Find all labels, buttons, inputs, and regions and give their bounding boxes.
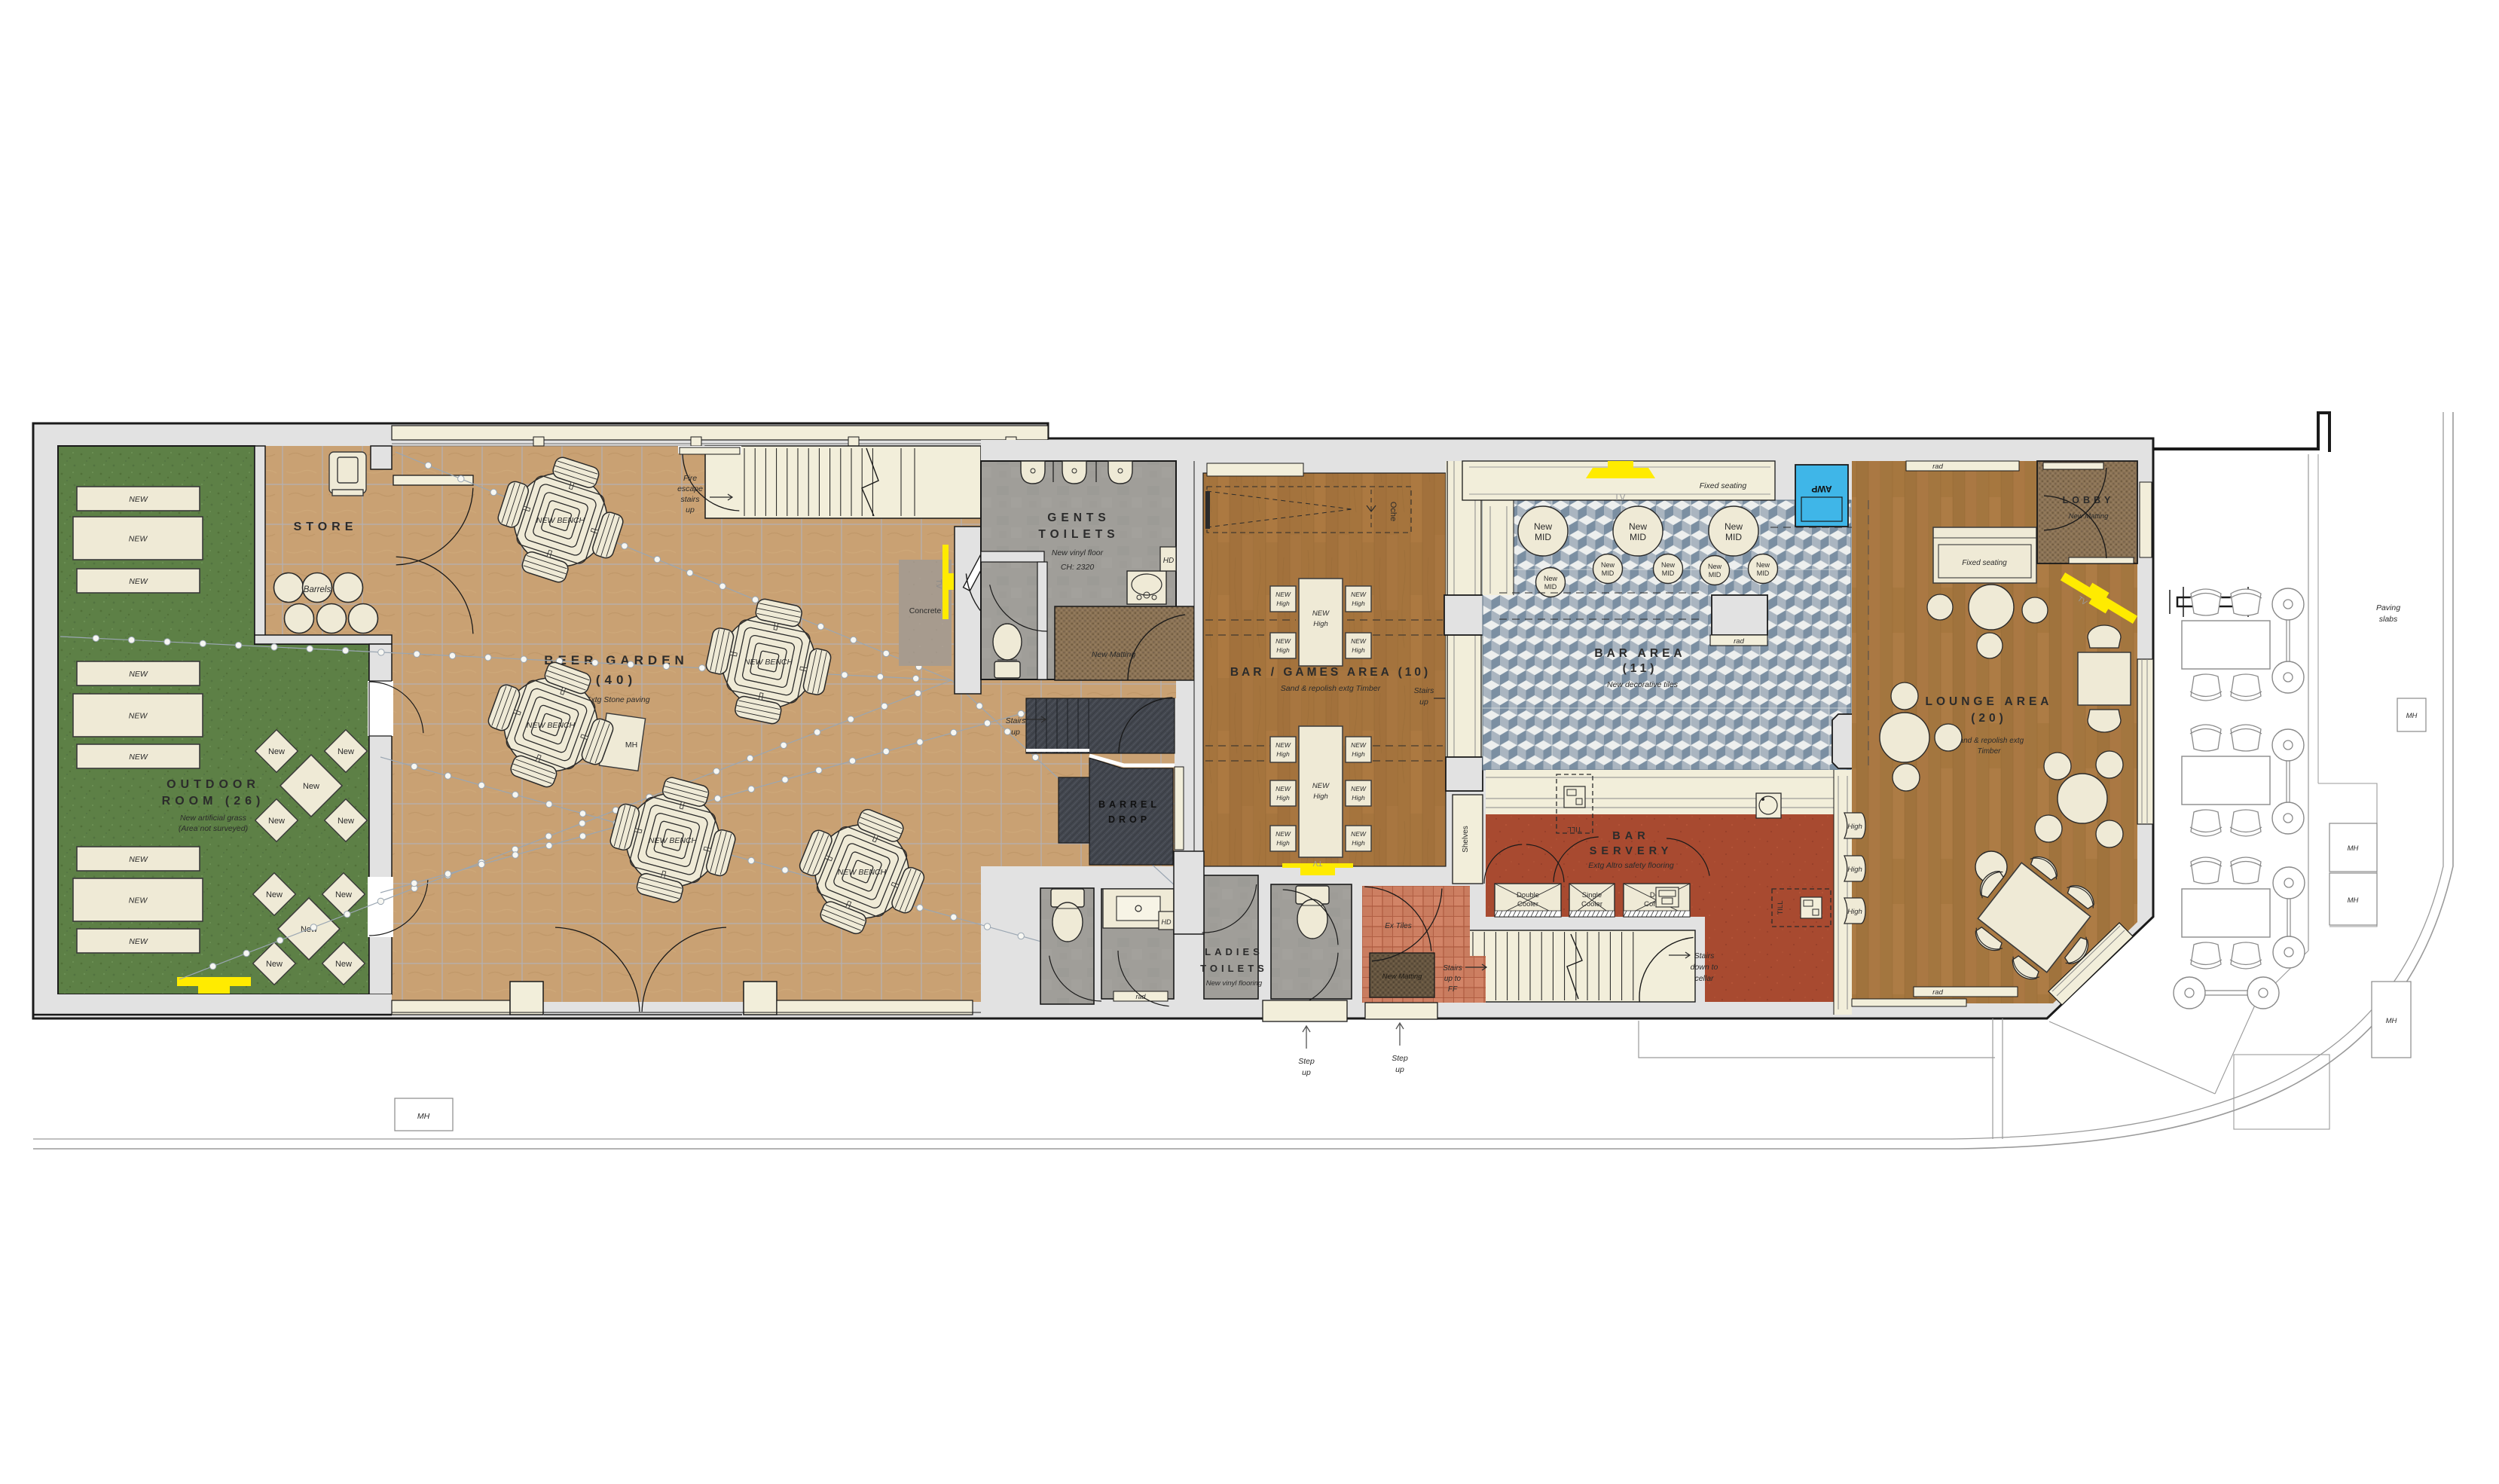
svg-text:Extg Altro safety flooring: Extg Altro safety flooring	[1588, 861, 1674, 870]
svg-text:NEW: NEW	[1351, 591, 1367, 598]
svg-text:MID: MID	[1602, 569, 1615, 577]
svg-text:LADIES: LADIES	[1205, 946, 1263, 957]
svg-text:New: New	[338, 817, 354, 826]
svg-text:Concrete: Concrete	[909, 606, 942, 615]
svg-text:High: High	[1847, 866, 1862, 874]
svg-text:High: High	[1276, 600, 1290, 607]
svg-text:High: High	[1847, 823, 1862, 831]
svg-text:MH: MH	[417, 1112, 430, 1121]
svg-text:LOBBY: LOBBY	[2063, 495, 2115, 505]
svg-text:Step: Step	[1392, 1054, 1408, 1063]
svg-text:NEW: NEW	[1351, 785, 1367, 792]
svg-text:High: High	[1352, 600, 1365, 607]
svg-text:Sand & repolish extg: Sand & repolish extg	[1954, 737, 2024, 745]
svg-text:New Matting: New Matting	[1382, 973, 1423, 981]
svg-text:CH: 2320: CH: 2320	[1061, 563, 1095, 572]
svg-text:STORE: STORE	[294, 521, 358, 533]
svg-text:Barrels: Barrels	[304, 585, 331, 594]
svg-text:NEW: NEW	[1312, 782, 1330, 790]
svg-text:High: High	[1352, 750, 1365, 758]
svg-text:High: High	[1847, 908, 1862, 916]
svg-text:TV: TV	[934, 579, 942, 589]
svg-text:GENTS: GENTS	[1047, 511, 1110, 524]
svg-text:New decorative tiles: New decorative tiles	[1607, 680, 1679, 689]
svg-text:High: High	[1313, 792, 1328, 801]
svg-text:cellar: cellar	[1694, 974, 1714, 983]
svg-text:MH: MH	[625, 740, 637, 750]
svg-text:NEW: NEW	[1312, 609, 1330, 618]
svg-text:BARREL: BARREL	[1098, 799, 1160, 810]
svg-text:rad: rad	[1734, 637, 1744, 646]
svg-text:up: up	[1419, 698, 1428, 707]
svg-text:Stairs: Stairs	[1414, 686, 1435, 695]
svg-text:DROP: DROP	[1108, 814, 1150, 825]
svg-text:NEW BENCH: NEW BENCH	[649, 836, 698, 845]
svg-text:NEW: NEW	[129, 495, 148, 504]
svg-text:NEW: NEW	[1275, 591, 1291, 598]
svg-text:Fixed seating: Fixed seating	[1962, 559, 2007, 567]
svg-text:NEW: NEW	[1275, 830, 1291, 838]
svg-text:New: New	[335, 960, 352, 969]
svg-text:SERVERY: SERVERY	[1590, 845, 1673, 857]
svg-text:High: High	[1276, 646, 1290, 654]
svg-text:New: New	[268, 817, 285, 826]
svg-text:AWP: AWP	[1811, 484, 1831, 494]
svg-text:New: New	[338, 747, 354, 756]
svg-text:TOILETS: TOILETS	[1038, 528, 1119, 541]
svg-text:(Area not surveyed): (Area not surveyed)	[179, 824, 248, 833]
svg-text:New: New	[268, 747, 285, 756]
svg-text:High: High	[1276, 750, 1290, 758]
svg-text:New: New	[303, 782, 319, 791]
svg-text:MH: MH	[2406, 712, 2418, 720]
svg-text:New: New	[1708, 563, 1722, 570]
svg-text:MH: MH	[2386, 1017, 2397, 1025]
svg-text:Stairs: Stairs	[1006, 716, 1027, 725]
svg-text:Paving: Paving	[2376, 603, 2400, 612]
svg-text:New: New	[266, 960, 283, 969]
svg-text:TV: TV	[1614, 492, 1625, 502]
svg-text:NEW: NEW	[1275, 785, 1291, 792]
svg-text:rad: rad	[1135, 993, 1146, 1000]
svg-text:NEW: NEW	[129, 855, 148, 864]
svg-text:New Matting: New Matting	[1092, 650, 1136, 659]
svg-text:New: New	[1661, 561, 1676, 569]
svg-text:NEW: NEW	[129, 577, 148, 586]
svg-text:FF: FF	[1448, 985, 1458, 994]
svg-text:NEW: NEW	[129, 670, 148, 679]
svg-text:slabs: slabs	[2379, 615, 2398, 624]
svg-text:Shelves: Shelves	[1462, 826, 1470, 853]
svg-text:NEW BENCH: NEW BENCH	[838, 868, 887, 877]
svg-text:up: up	[1302, 1068, 1311, 1077]
svg-text:NEW BENCH: NEW BENCH	[527, 721, 576, 730]
svg-text:NEW: NEW	[129, 937, 148, 946]
svg-text:NEW: NEW	[129, 753, 148, 762]
svg-text:High: High	[1352, 839, 1365, 847]
svg-text:NEW: NEW	[129, 896, 148, 905]
svg-text:NEW BENCH: NEW BENCH	[536, 516, 585, 525]
svg-text:Cooler: Cooler	[1581, 900, 1602, 908]
svg-text:Double: Double	[1517, 891, 1539, 899]
svg-text:Fixed seating: Fixed seating	[1700, 481, 1747, 490]
svg-text:Step: Step	[1298, 1057, 1315, 1066]
svg-text:NEW BENCH: NEW BENCH	[744, 658, 793, 667]
svg-text:Extg Stone paving: Extg Stone paving	[585, 695, 649, 704]
svg-text:rad: rad	[1932, 463, 1943, 471]
svg-text:NEW: NEW	[1275, 637, 1291, 645]
svg-text:NEW: NEW	[129, 535, 148, 544]
svg-text:down to: down to	[1691, 963, 1718, 972]
svg-text:New: New	[1544, 575, 1558, 582]
svg-text:up: up	[1011, 728, 1020, 737]
svg-text:High: High	[1352, 646, 1365, 654]
svg-text:New: New	[1629, 521, 1647, 532]
svg-text:Stairs: Stairs	[1443, 964, 1462, 973]
svg-text:NEW: NEW	[129, 712, 148, 721]
svg-text:MH: MH	[2348, 896, 2359, 905]
svg-text:ROOM (26): ROOM (26)	[162, 795, 265, 808]
svg-text:up: up	[1395, 1065, 1404, 1074]
svg-text:NEW: NEW	[1275, 741, 1291, 749]
svg-text:NEW: NEW	[1351, 637, 1367, 645]
svg-text:TILL: TILL	[1567, 825, 1581, 833]
svg-text:Sand & repolish extg Timber: Sand & repolish extg Timber	[1281, 684, 1381, 693]
svg-text:Fire: Fire	[683, 474, 697, 483]
svg-text:OUTDOOR: OUTDOOR	[166, 778, 260, 791]
svg-text:MID: MID	[1630, 532, 1646, 542]
svg-text:stairs: stairs	[680, 495, 700, 504]
svg-text:BAR: BAR	[1612, 830, 1649, 842]
svg-text:Timber: Timber	[1977, 747, 2001, 756]
svg-text:TOILETS: TOILETS	[1200, 963, 1268, 974]
svg-text:Stairs: Stairs	[1694, 951, 1715, 960]
svg-text:rad: rad	[1932, 988, 1943, 997]
svg-text:TV: TV	[1312, 859, 1322, 867]
svg-text:Single: Single	[1582, 891, 1602, 899]
svg-text:Cooler: Cooler	[1517, 900, 1538, 908]
svg-text:New: New	[1534, 521, 1552, 532]
svg-text:Oche: Oche	[1389, 502, 1398, 521]
svg-text:BAR AREA: BAR AREA	[1594, 647, 1685, 660]
svg-text:New: New	[1725, 521, 1743, 532]
svg-text:TILL: TILL	[1776, 900, 1785, 915]
svg-text:MID: MID	[1662, 569, 1675, 577]
svg-text:NEW: NEW	[1351, 741, 1367, 749]
svg-text:LOUNGE AREA: LOUNGE AREA	[1926, 695, 2053, 708]
svg-text:(11): (11)	[1623, 662, 1658, 675]
svg-text:New: New	[1756, 561, 1770, 569]
svg-text:up: up	[686, 505, 695, 515]
svg-text:Ex Tiles: Ex Tiles	[1385, 922, 1411, 930]
svg-text:High: High	[1276, 839, 1290, 847]
svg-text:MH: MH	[2348, 844, 2359, 853]
svg-text:New: New	[335, 890, 352, 899]
svg-text:MID: MID	[1709, 571, 1721, 579]
svg-text:High: High	[1276, 794, 1290, 802]
svg-text:New vinyl floor: New vinyl floor	[1052, 548, 1104, 557]
svg-text:High: High	[1313, 620, 1328, 628]
svg-text:BAR / GAMES AREA (10): BAR / GAMES AREA (10)	[1230, 666, 1431, 679]
svg-text:HD: HD	[1162, 918, 1172, 926]
svg-text:(20): (20)	[1971, 712, 2007, 725]
svg-text:New: New	[1601, 561, 1615, 569]
svg-text:MID: MID	[1535, 532, 1551, 542]
svg-text:MID: MID	[1544, 583, 1557, 591]
svg-text:HD: HD	[1163, 557, 1174, 565]
svg-text:escape: escape	[677, 484, 703, 493]
svg-text:(40): (40)	[596, 673, 637, 687]
svg-text:MID: MID	[1725, 532, 1742, 542]
svg-text:up to: up to	[1444, 975, 1462, 983]
svg-text:New artificial grass: New artificial grass	[180, 814, 247, 823]
svg-text:New: New	[266, 890, 283, 899]
svg-text:New vinyl flooring: New vinyl flooring	[1206, 979, 1263, 988]
svg-text:NEW: NEW	[1351, 830, 1367, 838]
svg-text:High: High	[1352, 794, 1365, 802]
svg-text:MID: MID	[1757, 569, 1770, 577]
